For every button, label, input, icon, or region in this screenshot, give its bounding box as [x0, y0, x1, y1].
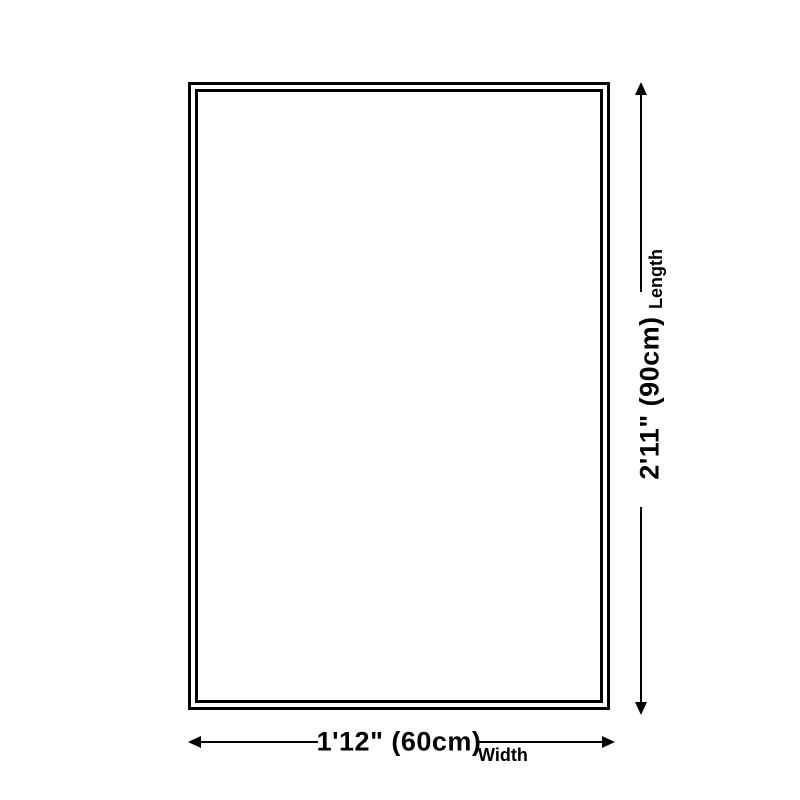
arrow-right-icon	[602, 736, 615, 748]
length-dimension-line-bottom	[640, 507, 642, 704]
dimension-diagram: Length 2'11" (90cm) 1'12" (60cm) Width	[0, 0, 800, 800]
rug-outline-outer	[188, 82, 610, 710]
length-axis-label: Length	[647, 249, 665, 309]
rug-outline-inner	[195, 89, 603, 703]
arrow-down-icon	[635, 702, 647, 715]
width-dimension-line-right	[477, 741, 603, 743]
width-axis-label: Width	[478, 746, 528, 764]
width-dimension-line-left	[199, 741, 318, 743]
width-value-label: 1'12" (60cm)	[317, 729, 482, 756]
length-dimension-line-top	[640, 93, 642, 292]
length-value-label: 2'11" (90cm)	[637, 316, 664, 479]
